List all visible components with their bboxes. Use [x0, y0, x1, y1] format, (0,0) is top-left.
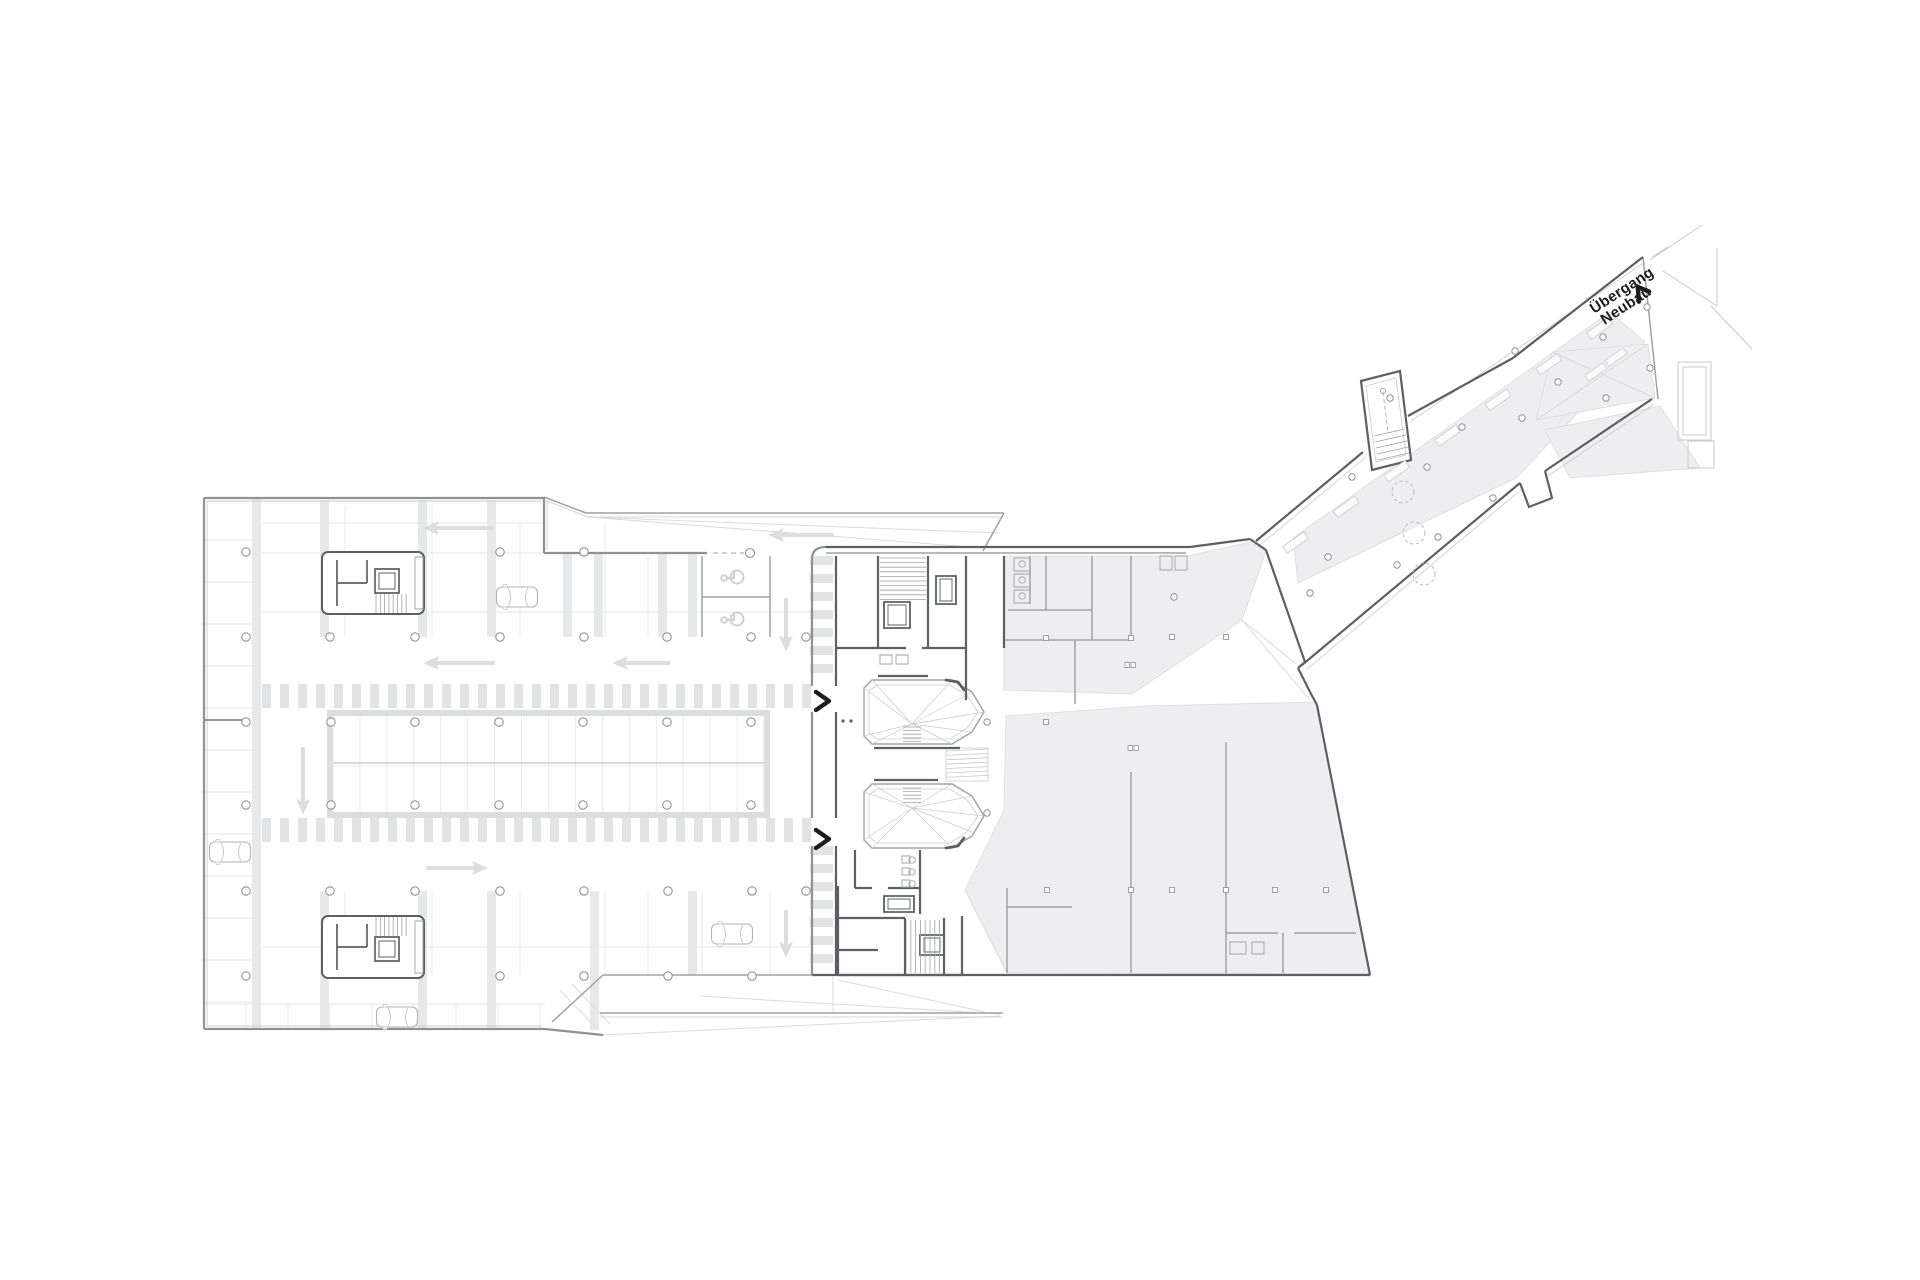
column-circle — [242, 972, 250, 980]
hatch-bar — [532, 684, 541, 708]
hatch-bar — [478, 818, 487, 842]
column-square — [1324, 888, 1329, 893]
hatch-bar — [334, 684, 343, 708]
hatch-bar — [316, 684, 325, 708]
hatch-bar — [676, 684, 685, 708]
car-body — [210, 842, 251, 862]
hatch-bar — [298, 684, 307, 708]
hatch-bar — [810, 846, 833, 855]
column-circle — [1490, 495, 1496, 501]
column-circle — [802, 887, 810, 895]
column-circle — [664, 887, 672, 895]
column-circle — [664, 972, 672, 980]
pillar-band — [658, 553, 667, 637]
paper-background — [0, 0, 1920, 1280]
column-circle — [1325, 554, 1331, 560]
column-circle — [496, 972, 504, 980]
column-circle — [663, 801, 671, 809]
column-circle — [1394, 562, 1400, 568]
elevator — [936, 576, 956, 604]
hatch-bar — [496, 818, 505, 842]
hatch-bar — [370, 818, 379, 842]
column-circle — [1171, 594, 1177, 600]
car-mirror — [718, 944, 722, 946]
hatch-bar — [604, 818, 613, 842]
hatch-bar — [496, 684, 505, 708]
hatch-bar — [730, 818, 739, 842]
car-icon — [210, 840, 251, 865]
column-square — [1044, 720, 1049, 725]
column-circle — [1644, 304, 1650, 310]
hatch-bar — [810, 900, 833, 909]
hatch-bar — [334, 818, 343, 842]
hatch-bar — [766, 818, 775, 842]
hatch-bar — [586, 684, 595, 708]
hatch-bar — [810, 574, 833, 583]
car-body — [377, 1007, 418, 1027]
hatch-bar — [748, 818, 757, 842]
car-icon — [377, 1005, 418, 1030]
hatch-bar — [406, 684, 415, 708]
column-circle — [1424, 464, 1430, 470]
hatch-bar — [424, 818, 433, 842]
car-icon — [712, 922, 753, 947]
car-body — [497, 587, 538, 607]
car-mirror — [383, 1005, 387, 1007]
strip-cap — [764, 710, 770, 818]
hatch-bar — [810, 864, 833, 873]
column-circle — [747, 801, 755, 809]
column-circle — [327, 718, 335, 726]
pillar-band — [688, 891, 697, 975]
column-circle — [1647, 365, 1653, 371]
column-circle — [580, 548, 588, 556]
column-square — [1170, 888, 1175, 893]
hatch-bar — [810, 664, 833, 673]
hatch-bar — [550, 818, 559, 842]
floor-plan-page: ÜbergangNeubau — [0, 0, 1920, 1280]
hatch-bar — [810, 646, 833, 655]
hatch-bar — [460, 684, 469, 708]
stair-core — [322, 916, 424, 978]
car-mirror — [503, 585, 507, 587]
hatch-bar — [316, 818, 325, 842]
hatch-bar — [810, 592, 833, 601]
hatch-bar — [478, 684, 487, 708]
column-square — [1129, 636, 1134, 641]
hatch-bar — [568, 818, 577, 842]
hatch-bar — [568, 684, 577, 708]
column-circle — [984, 719, 990, 725]
column-square — [1045, 888, 1050, 893]
pillar-band — [688, 553, 697, 637]
column-circle — [411, 718, 419, 726]
marker-dot — [841, 719, 844, 722]
hatch-bar — [730, 684, 739, 708]
column-circle — [327, 801, 335, 809]
hatch-bar — [658, 818, 667, 842]
hatch-bar — [712, 818, 721, 842]
column-circle — [496, 887, 504, 895]
hatch-bar — [604, 684, 613, 708]
hatch-bar — [388, 684, 397, 708]
column-square — [1224, 635, 1229, 640]
atrium-stair-hall — [864, 784, 984, 848]
hatch-bar — [766, 684, 775, 708]
column-circle — [1512, 348, 1518, 354]
column-square — [1273, 888, 1278, 893]
hatch-bar — [676, 818, 685, 842]
hatch-bar — [262, 818, 271, 842]
column-circle — [411, 801, 419, 809]
car-mirror — [718, 922, 722, 924]
pillar-band — [252, 498, 261, 1029]
column-circle — [1307, 590, 1313, 596]
column-square — [1044, 636, 1049, 641]
hatch-bar — [352, 818, 361, 842]
pillar-band — [594, 553, 603, 637]
hatch-bar — [622, 684, 631, 708]
hatch-bar — [442, 684, 451, 708]
column-circle — [579, 718, 587, 726]
column-circle — [326, 633, 334, 641]
car-icon — [497, 585, 538, 610]
hatch-bar — [810, 556, 833, 565]
hatch-bar — [712, 684, 721, 708]
elevator-shaft — [936, 576, 956, 604]
hatch-bar — [784, 818, 793, 842]
hatch-bar — [640, 684, 649, 708]
hatch-bar — [810, 882, 833, 891]
column-circle — [242, 633, 250, 641]
column-circle — [580, 887, 588, 895]
hatch-bar — [388, 818, 397, 842]
hatch-bar — [262, 684, 271, 708]
hatch-bar — [810, 954, 833, 963]
hatch-bar — [802, 818, 811, 842]
column-circle — [1519, 415, 1525, 421]
car-mirror — [383, 1027, 387, 1029]
column-square — [1224, 888, 1229, 893]
pillar-band — [487, 500, 496, 637]
column-circle — [748, 887, 756, 895]
column-circle — [580, 633, 588, 641]
hatch-bar — [280, 818, 289, 842]
column-circle — [1349, 474, 1355, 480]
column-circle — [1459, 424, 1465, 430]
hatch-bar — [442, 818, 451, 842]
column-circle — [663, 633, 671, 641]
column-square — [1125, 663, 1130, 668]
column-circle — [411, 887, 419, 895]
pillar-band — [590, 891, 599, 1030]
column-circle — [1603, 395, 1609, 401]
column-circle — [802, 633, 810, 641]
strip-edge — [327, 710, 770, 716]
floor-plan-drawing: ÜbergangNeubau — [0, 0, 1920, 1280]
column-square — [1134, 746, 1139, 751]
hatch-bar — [514, 818, 523, 842]
hatch-bar — [694, 684, 703, 708]
car-mirror — [503, 607, 507, 609]
hatch-bar — [810, 936, 833, 945]
hatch-bar — [622, 818, 631, 842]
column-circle — [495, 801, 503, 809]
column-circle — [580, 972, 588, 980]
column-circle — [242, 718, 250, 726]
hatch-bar — [640, 818, 649, 842]
hatch-bar — [810, 918, 833, 927]
column-circle — [1387, 395, 1393, 401]
strip-edge — [327, 812, 770, 818]
hatch-bar — [802, 684, 811, 708]
hatch-bar — [514, 684, 523, 708]
column-square — [1128, 746, 1133, 751]
hatch-bar — [406, 818, 415, 842]
column-circle — [326, 887, 334, 895]
column-circle — [579, 801, 587, 809]
hatch-bar — [298, 818, 307, 842]
column-square — [1170, 635, 1175, 640]
entry-column — [746, 549, 755, 558]
column-circle — [496, 548, 504, 556]
column-circle — [663, 718, 671, 726]
elevator — [920, 935, 944, 955]
column-circle — [242, 887, 250, 895]
elevator — [884, 896, 914, 912]
car-body — [712, 924, 753, 944]
hatch-bar — [550, 684, 559, 708]
hatch-bar — [280, 684, 289, 708]
column-circle — [495, 718, 503, 726]
hatch-bar — [784, 684, 793, 708]
hatch-bar — [694, 818, 703, 842]
pillar-band — [487, 891, 496, 1030]
hatch-bar — [352, 684, 361, 708]
hatch-bar — [748, 684, 757, 708]
elevator — [884, 602, 910, 628]
pillar-band — [563, 553, 572, 637]
hatch-bar — [586, 818, 595, 842]
hatch-bar — [658, 684, 667, 708]
hatch-bar — [460, 818, 469, 842]
column-circle — [411, 633, 419, 641]
column-circle — [496, 633, 504, 641]
stair-core — [322, 552, 424, 614]
car-mirror — [216, 862, 220, 864]
column-circle — [242, 548, 250, 556]
column-circle — [1555, 379, 1561, 385]
column-circle — [984, 810, 990, 816]
column-square — [1129, 888, 1134, 893]
hatch-bar — [424, 684, 433, 708]
hatch-bar — [532, 818, 541, 842]
column-circle — [748, 972, 756, 980]
column-circle — [747, 718, 755, 726]
column-circle — [242, 801, 250, 809]
column-circle — [1600, 334, 1606, 340]
hatch-bar — [370, 684, 379, 708]
column-circle — [747, 633, 755, 641]
hatch-bar — [810, 610, 833, 619]
marker-dot — [849, 719, 852, 722]
car-mirror — [216, 840, 220, 842]
elevator-shaft — [884, 896, 914, 912]
hatch-bar — [810, 628, 833, 637]
column-square — [1131, 663, 1136, 668]
column-circle — [1435, 534, 1441, 540]
